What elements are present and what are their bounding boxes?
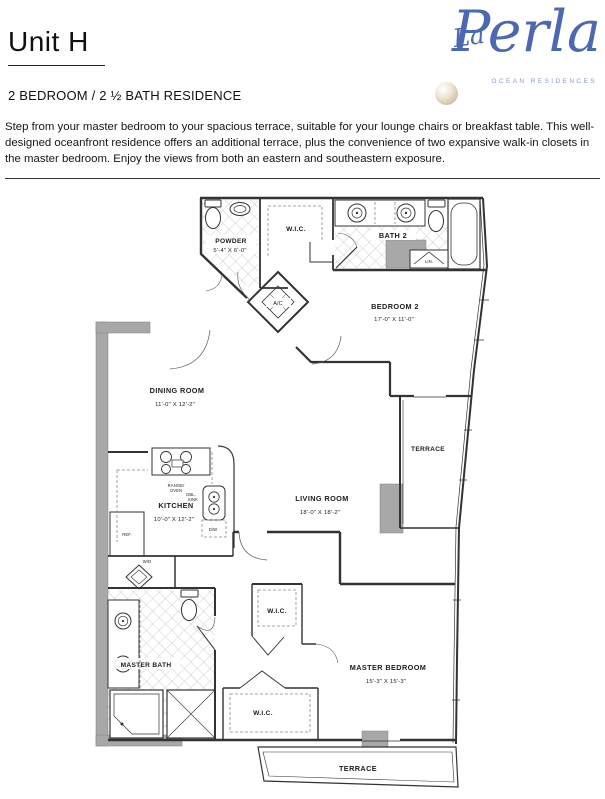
powder-toilet-tank [205, 200, 221, 207]
label-master-bath: MASTER BATH [121, 662, 172, 669]
label-dining-dims: 11'-0" X 12'-2" [155, 402, 195, 408]
label-bedroom2: BEDROOM 2 [371, 302, 419, 311]
bath2-toilet-tank [428, 200, 445, 207]
floorplan-svg: POWDER 5'-4" X 6'-0" W.I.C. BATH 2 LIN. … [0, 0, 605, 799]
label-linen: LIN. [425, 259, 433, 264]
label-ref: REF. [122, 532, 131, 537]
label-kitchen: KITCHEN [158, 501, 193, 510]
label-kitchen-dims: 10'-0" X 12'-2" [154, 517, 194, 523]
label-living: LIVING ROOM [295, 494, 348, 503]
south-terrace-column [362, 731, 388, 747]
label-wic-top: W.I.C. [286, 226, 306, 233]
master-toilet-tank [181, 590, 198, 597]
label-sink2: SINK [188, 497, 198, 502]
left-shear-wall [96, 322, 108, 746]
kitchen-double-sink [203, 486, 225, 520]
label-master-bedroom: MASTER BEDROOM [350, 663, 427, 672]
label-dw: D/W [209, 527, 217, 532]
label-master-bedroom-dims: 15'-3" X 15'-3" [366, 679, 406, 685]
label-ac: A/C [273, 301, 282, 307]
label-range2: OVEN [170, 488, 182, 493]
label-wic-upper: W.I.C. [267, 608, 287, 615]
label-wd: W/D [143, 559, 151, 564]
bath2-toilet [429, 211, 444, 232]
master-toilet [182, 600, 197, 621]
label-terrace-east: TERRACE [411, 446, 445, 453]
label-living-dims: 18'-0" X 18'-2" [300, 510, 340, 516]
label-powder: POWDER [215, 238, 246, 245]
left-wall-stub [96, 322, 150, 333]
label-bath2: BATH 2 [379, 231, 407, 240]
brochure-page: Unit H 2 BEDROOM / 2 ½ BATH RESIDENCE Pe… [0, 0, 605, 799]
powder-toilet [206, 208, 221, 229]
label-terrace-south: TERRACE [339, 764, 377, 773]
label-bedroom2-dims: 17'-0" X 11'-0" [374, 317, 414, 323]
label-wic-lower: W.I.C. [253, 710, 273, 717]
label-dining: DINING ROOM [150, 386, 205, 395]
label-powder-dims: 5'-4" X 6'-0" [213, 248, 246, 254]
